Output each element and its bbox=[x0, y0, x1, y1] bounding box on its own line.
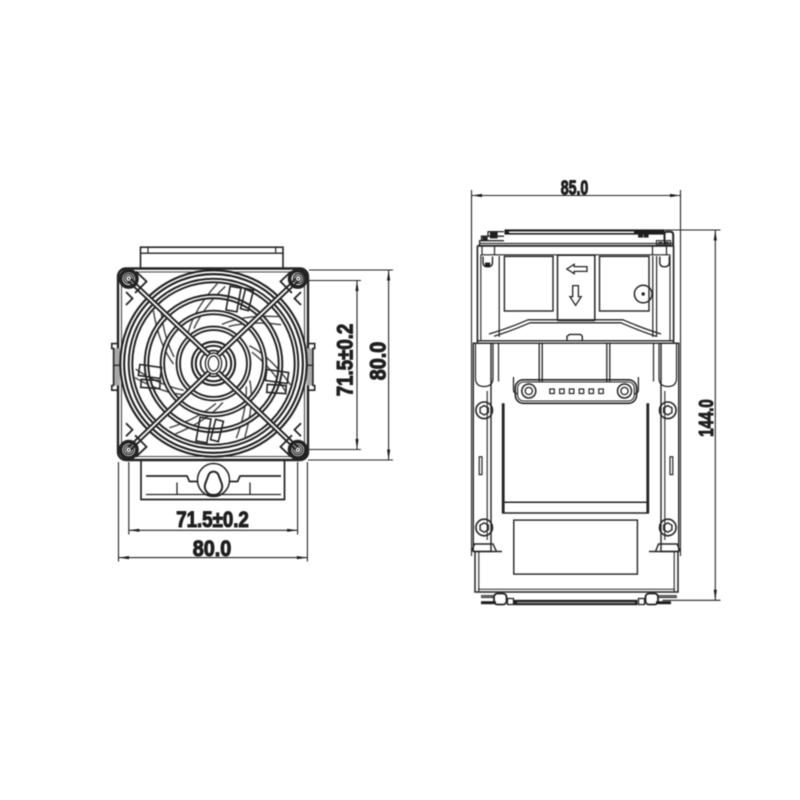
svg-text:85.0: 85.0 bbox=[561, 176, 589, 199]
svg-text:144.0: 144.0 bbox=[695, 399, 718, 437]
svg-text:71.5±0.2: 71.5±0.2 bbox=[176, 508, 249, 532]
svg-text:80.0: 80.0 bbox=[193, 537, 232, 561]
svg-text:71.5±0.2: 71.5±0.2 bbox=[334, 324, 358, 397]
svg-text:80.0: 80.0 bbox=[366, 342, 390, 381]
